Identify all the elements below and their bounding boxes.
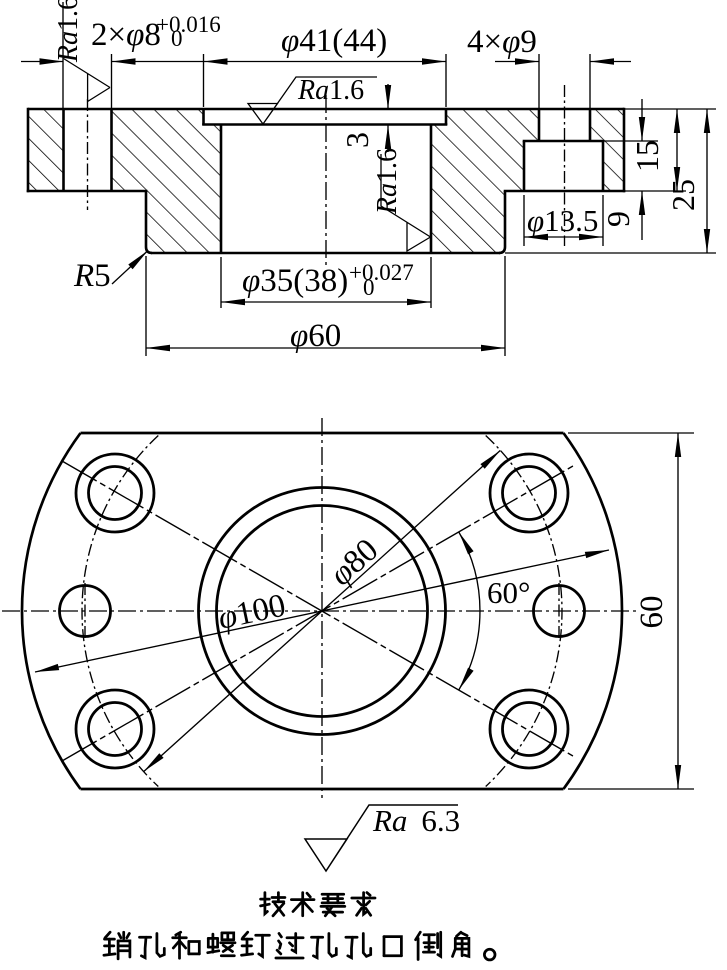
svg-text:R5: R5 — [73, 258, 111, 294]
svg-text:φ13.5: φ13.5 — [527, 203, 598, 238]
svg-text:φ41(44): φ41(44) — [281, 23, 387, 59]
svg-text:60°: 60° — [487, 575, 530, 610]
svg-text:4×φ9: 4×φ9 — [467, 24, 537, 60]
svg-text:15: 15 — [629, 140, 665, 172]
svg-text:9: 9 — [600, 211, 636, 227]
svg-text:φ80: φ80 — [323, 532, 385, 593]
svg-text:Ra 6.3: Ra 6.3 — [372, 803, 460, 838]
svg-text:φ100: φ100 — [215, 588, 289, 637]
svg-text:3: 3 — [339, 132, 375, 148]
svg-text:+0.016: +0.016 — [156, 12, 221, 37]
svg-text:φ60: φ60 — [290, 318, 341, 354]
svg-text:φ35(38): φ35(38) — [242, 263, 348, 299]
svg-text:2×φ8: 2×φ8 — [91, 17, 161, 53]
svg-text:Ra1.6: Ra1.6 — [297, 75, 364, 106]
svg-text:25: 25 — [665, 179, 701, 211]
svg-text:0: 0 — [171, 26, 183, 51]
svg-text:+0.027: +0.027 — [349, 260, 414, 285]
svg-text:Ra1.6: Ra1.6 — [372, 148, 403, 215]
svg-text:60: 60 — [634, 596, 670, 629]
svg-text:Ra1.6: Ra1.6 — [53, 0, 84, 63]
svg-text:0: 0 — [363, 275, 375, 300]
